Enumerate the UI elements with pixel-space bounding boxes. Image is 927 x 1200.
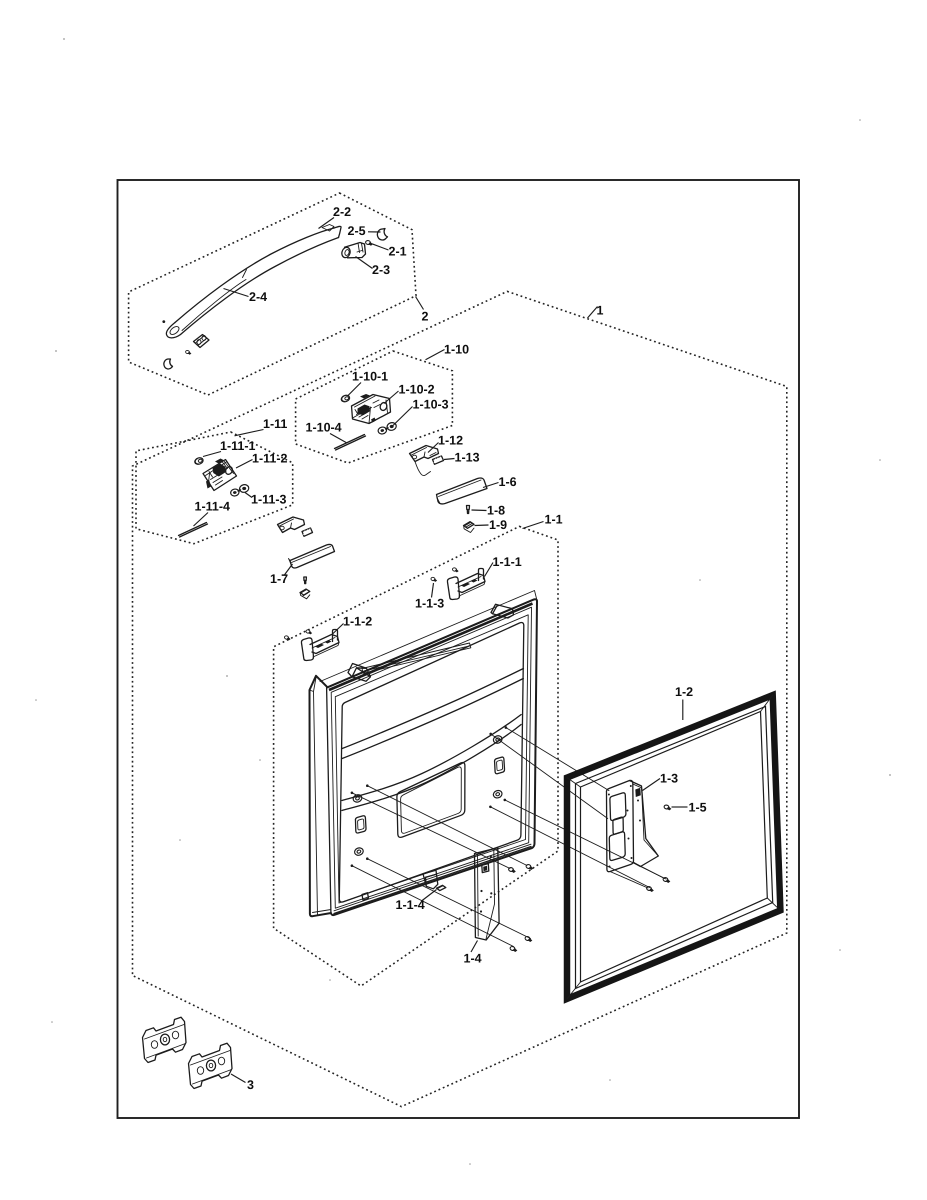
svg-text:1-11-3: 1-11-3 xyxy=(251,493,286,507)
svg-text:1-10-1: 1-10-1 xyxy=(352,370,388,384)
svg-text:2: 2 xyxy=(422,310,429,324)
svg-text:1-1: 1-1 xyxy=(545,513,563,527)
svg-text:3: 3 xyxy=(247,1078,254,1092)
svg-text:1-1-3: 1-1-3 xyxy=(415,597,444,611)
svg-text:1-6: 1-6 xyxy=(499,475,517,489)
svg-text:2-4: 2-4 xyxy=(249,290,267,304)
svg-text:1-8: 1-8 xyxy=(487,504,505,518)
svg-text:1-11-4: 1-11-4 xyxy=(195,500,230,514)
svg-text:2-1: 2-1 xyxy=(389,245,407,259)
svg-text:1-5: 1-5 xyxy=(689,801,707,815)
svg-text:1-4: 1-4 xyxy=(464,952,482,966)
svg-text:1-9: 1-9 xyxy=(489,518,507,532)
svg-text:2-3: 2-3 xyxy=(372,263,390,277)
svg-text:1-1-4: 1-1-4 xyxy=(396,898,425,912)
svg-text:1-11-1: 1-11-1 xyxy=(220,439,255,453)
svg-text:1: 1 xyxy=(597,304,604,318)
svg-text:1-3: 1-3 xyxy=(660,772,678,786)
svg-text:2-2: 2-2 xyxy=(333,205,351,219)
svg-text:1-1-1: 1-1-1 xyxy=(493,555,522,569)
svg-text:1-11: 1-11 xyxy=(263,417,287,431)
svg-text:1-10-2: 1-10-2 xyxy=(399,383,435,397)
svg-text:1-10-4: 1-10-4 xyxy=(306,421,342,435)
svg-text:1-12: 1-12 xyxy=(438,434,463,448)
svg-text:2-5: 2-5 xyxy=(348,224,366,238)
svg-text:1-10: 1-10 xyxy=(444,343,469,357)
svg-text:1-10-3: 1-10-3 xyxy=(413,398,449,412)
svg-text:1-1-2: 1-1-2 xyxy=(343,615,372,629)
svg-text:1-2: 1-2 xyxy=(675,685,693,699)
svg-text:1-13: 1-13 xyxy=(455,451,480,465)
svg-text:1-11-2: 1-11-2 xyxy=(252,452,287,466)
